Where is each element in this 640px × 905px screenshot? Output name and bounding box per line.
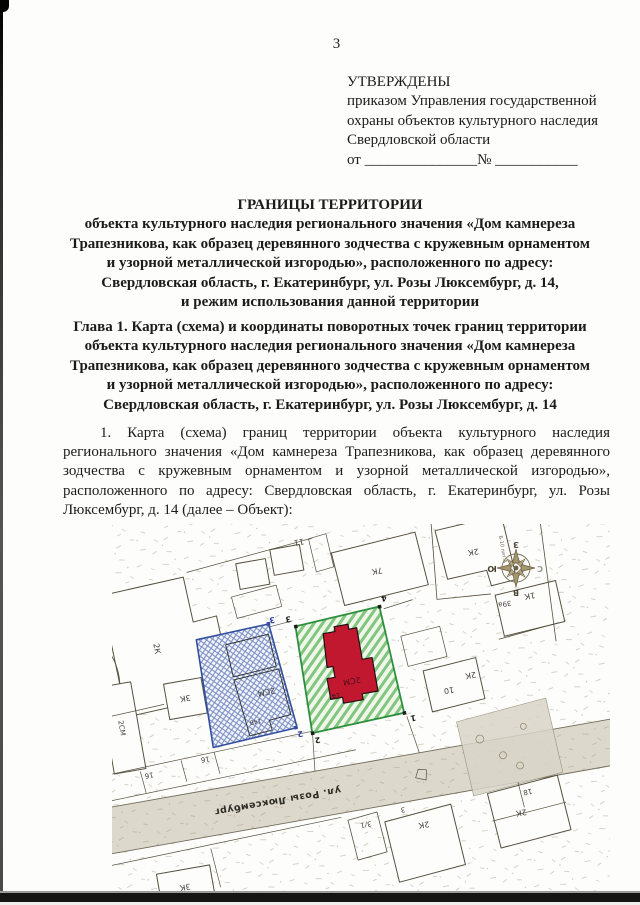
- chapter-line: и узорной металлической изгородью», расп…: [50, 376, 610, 395]
- chapter-line: Свердловская область, г. Екатеринбург, у…: [50, 396, 610, 415]
- title-line: Свердловская область, г. Екатеринбург, у…: [50, 274, 610, 293]
- rotated-map-sheet: 2СМ 14В 2СМ 14 3 4: [112, 524, 610, 894]
- compass-south-label: Ю: [487, 564, 496, 573]
- compass-west-label: З: [513, 540, 519, 549]
- approval-block: УТВЕРЖДЕНЫ приказом Управления государст…: [347, 73, 598, 170]
- document-page: 3 УТВЕРЖДЕНЫ приказом Управления государ…: [0, 0, 640, 905]
- chapter-line: Глава 1. Карта (схема) и координаты пово…: [50, 318, 610, 337]
- cadastral-map: 2СМ 14В 2СМ 14 3 4: [112, 524, 610, 894]
- scan-edge-bottom: [0, 893, 640, 902]
- title-line: и узорной металлической изгородью», расп…: [50, 254, 610, 273]
- chapter-line: Трапезникова, как образец деревянного зо…: [50, 357, 610, 376]
- building-label: 2К: [417, 819, 429, 830]
- scan-edge-corner: [0, 0, 9, 12]
- building-label: 7К: [371, 565, 383, 576]
- page-number: 3: [63, 36, 610, 53]
- map-scheme: 2СМ 14В 2СМ 14 3 4: [112, 524, 610, 894]
- building-label: 1К: [523, 590, 535, 601]
- approval-line: Свердловской области: [347, 131, 598, 150]
- boundary-corner-mark: [378, 605, 382, 609]
- boundary-corner-mark: [294, 625, 298, 629]
- blue-corner-mark: [294, 726, 298, 730]
- document-title: ГРАНИЦЫ ТЕРРИТОРИИ объекта культурного н…: [50, 196, 610, 312]
- compass-north-label: С: [537, 564, 543, 573]
- building-label: 2К: [464, 670, 476, 681]
- approval-line: УТВЕРЖДЕНЫ: [347, 73, 598, 92]
- approval-line: охраны объектов культурного наследия: [347, 112, 598, 131]
- chapter1-heading: Глава 1. Карта (схема) и координаты пово…: [50, 318, 610, 415]
- title-line: Трапезникова, как образец деревянного зо…: [50, 235, 610, 254]
- chapter-line: объекта культурного наследия регионально…: [50, 337, 610, 356]
- building-label: 10: [443, 685, 455, 696]
- building-label: 2К: [151, 643, 162, 655]
- approval-date-line: от _______________№ ___________: [347, 151, 598, 170]
- title-line: объекта культурного наследия регионально…: [50, 215, 610, 234]
- boundary-corner-mark: [311, 731, 315, 735]
- compass-east-label: В: [513, 588, 519, 597]
- building-label: 2К: [467, 546, 479, 557]
- approval-line: приказом Управления государственной: [347, 92, 598, 111]
- building-label: 2К: [515, 807, 527, 818]
- title-line: и режим использования данной территории: [50, 293, 610, 312]
- building-label: 3К: [179, 693, 191, 704]
- title-line: ГРАНИЦЫ ТЕРРИТОРИИ: [50, 196, 610, 215]
- parcel-label: 18: [523, 787, 533, 796]
- boundary-corner-mark: [402, 711, 406, 715]
- paragraph-1: 1. Карта (схема) границ территории объек…: [63, 424, 610, 520]
- building-label: 11: [293, 537, 305, 548]
- scan-edge-left: [0, 0, 3, 894]
